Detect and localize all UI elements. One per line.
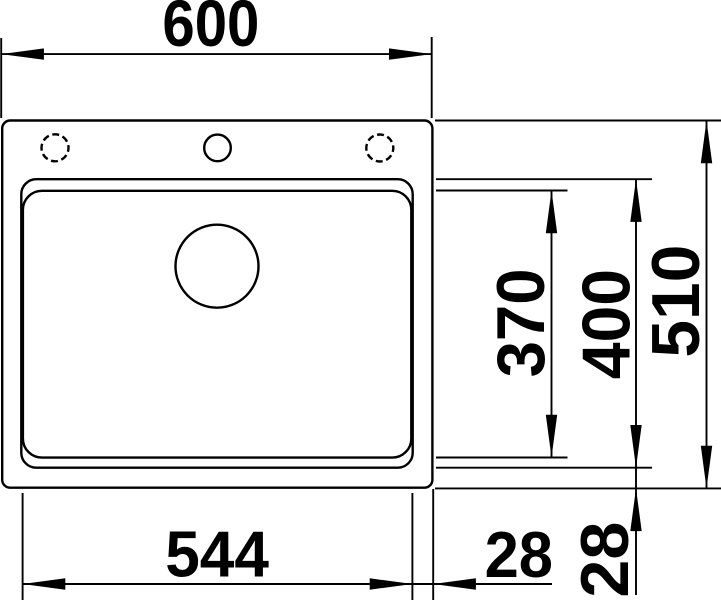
svg-text:600: 600 [162, 0, 259, 60]
svg-text:400: 400 [569, 269, 645, 379]
svg-text:28: 28 [485, 518, 553, 591]
svg-text:370: 370 [483, 268, 559, 377]
svg-text:544: 544 [165, 518, 269, 591]
svg-text:510: 510 [638, 245, 714, 358]
svg-text:28: 28 [567, 522, 643, 598]
